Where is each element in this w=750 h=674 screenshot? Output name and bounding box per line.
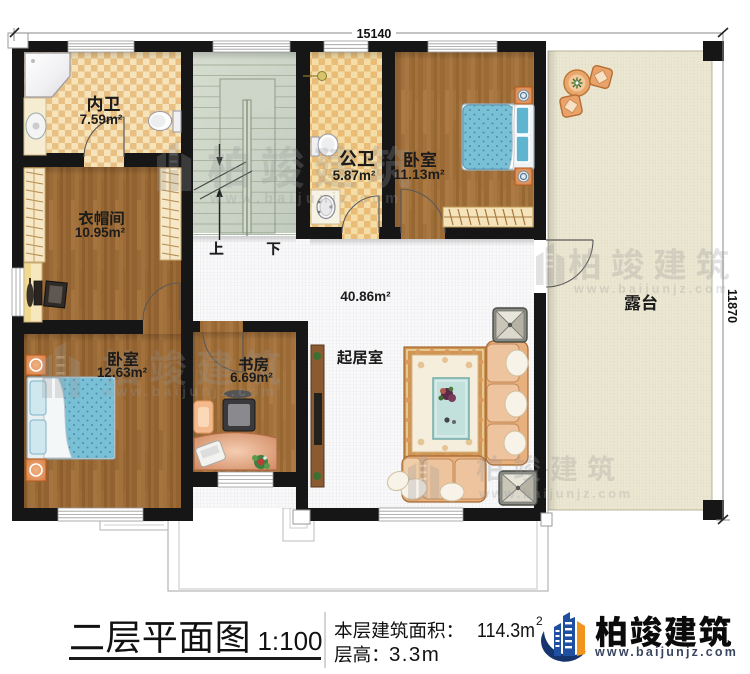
svg-text:12.63m²: 12.63m² [97, 365, 148, 380]
svg-text:2: 2 [536, 614, 543, 628]
svg-text:11.13m²: 11.13m² [393, 166, 445, 182]
svg-text:11870: 11870 [725, 289, 739, 323]
svg-text:www.baijunjz.com: www.baijunjz.com [209, 191, 402, 207]
svg-text:40.86m²: 40.86m² [340, 289, 391, 304]
svg-text:www.baijunjz.com: www.baijunjz.com [573, 282, 730, 296]
svg-text:15140: 15140 [357, 27, 392, 41]
svg-text:10.95m²: 10.95m² [75, 225, 126, 240]
svg-text:5.87m²: 5.87m² [333, 168, 376, 183]
svg-text:1:100: 1:100 [257, 626, 322, 656]
svg-text:7.59m²: 7.59m² [80, 112, 123, 127]
svg-text:www.baijunjz.com: www.baijunjz.com [594, 645, 738, 659]
svg-text:www.baijunjz.com: www.baijunjz.com [101, 383, 277, 399]
svg-text:6.69m²: 6.69m² [230, 370, 273, 385]
svg-text:3.3m: 3.3m [389, 643, 440, 666]
svg-text:114.3m: 114.3m [477, 619, 535, 642]
svg-text:www.baijunjz.com: www.baijunjz.com [478, 486, 633, 501]
